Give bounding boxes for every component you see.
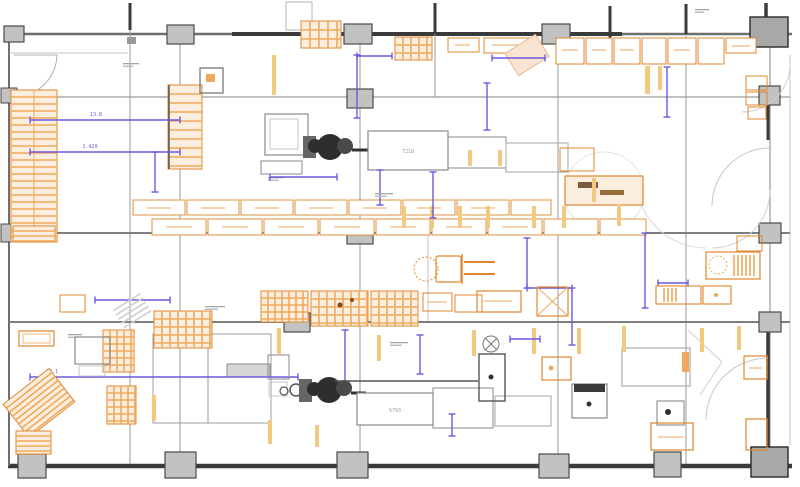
column — [539, 454, 569, 478]
support-strip — [645, 66, 650, 94]
support-strip — [532, 206, 536, 228]
floor-plan-viewport: 721813.81.42022.15793 — [0, 0, 800, 487]
support-strip — [272, 55, 276, 95]
workbench — [586, 38, 612, 64]
pallet-block — [107, 386, 136, 424]
machine-part — [574, 384, 605, 392]
equipment-dot — [714, 293, 718, 297]
table — [227, 364, 270, 377]
workbench — [642, 38, 666, 64]
extruder-gear — [308, 139, 322, 153]
column — [344, 24, 372, 44]
machine-dot — [587, 402, 592, 407]
column — [347, 89, 373, 108]
pallet-rack — [13, 226, 55, 242]
support-strip — [377, 335, 381, 361]
pallet-dot — [350, 298, 354, 302]
workbench — [600, 219, 646, 235]
column — [337, 452, 368, 478]
support-strip — [737, 326, 741, 350]
floor-plan-drawing: 721813.81.42022.15793 — [0, 0, 800, 487]
support-strip — [532, 328, 536, 354]
pallet-stack — [16, 431, 51, 454]
column — [167, 25, 194, 44]
support-strip — [152, 395, 156, 421]
equipment-marker — [206, 74, 215, 82]
pallet-block — [154, 311, 212, 348]
workbench — [614, 38, 640, 64]
pallet-rack — [168, 85, 202, 169]
machine-label: 5793 — [389, 408, 401, 414]
dimension-label: 13.8 — [90, 112, 102, 118]
machine-dot — [665, 409, 671, 415]
support-strip — [617, 204, 621, 226]
support-strip — [486, 206, 490, 228]
pallet-block — [103, 330, 134, 372]
support-strip — [577, 328, 581, 354]
pallet-block — [371, 291, 418, 326]
pallet-block — [311, 291, 368, 326]
equipment-dot — [549, 366, 554, 371]
workbench — [556, 38, 584, 64]
support-strip — [472, 330, 476, 356]
support-strip — [458, 206, 462, 228]
machine-part — [600, 190, 624, 195]
support-strip — [700, 328, 704, 352]
workbench — [698, 38, 724, 64]
equipment-marker — [682, 352, 689, 372]
wall-mark — [127, 37, 136, 44]
support-strip — [315, 425, 319, 447]
pallet-dot — [338, 303, 343, 308]
pallet-block — [261, 291, 308, 322]
column — [4, 26, 24, 42]
support-strip — [268, 420, 272, 444]
extruder-gear — [336, 380, 352, 396]
support-strip — [468, 150, 472, 166]
cabinet-knob — [489, 375, 494, 380]
workbench — [668, 38, 696, 64]
workbench — [544, 219, 598, 235]
pallet-block — [301, 21, 341, 48]
support-strip — [277, 328, 281, 354]
support-strip — [592, 178, 596, 202]
support-strip — [658, 66, 662, 90]
support-strip — [402, 206, 406, 228]
workbench — [511, 200, 551, 215]
extruder-gear — [337, 138, 353, 154]
column-corner — [751, 447, 788, 477]
dimension-label: 1.420 — [82, 144, 97, 150]
column — [165, 452, 196, 478]
support-strip — [498, 150, 502, 166]
machine-label: 7218 — [402, 149, 414, 155]
support-strip — [622, 326, 626, 352]
column — [759, 312, 781, 332]
column — [654, 452, 681, 477]
support-strip — [562, 206, 566, 228]
column — [759, 86, 780, 105]
column — [18, 454, 46, 478]
pallet-block — [395, 37, 432, 60]
extruder-gear — [307, 382, 321, 396]
